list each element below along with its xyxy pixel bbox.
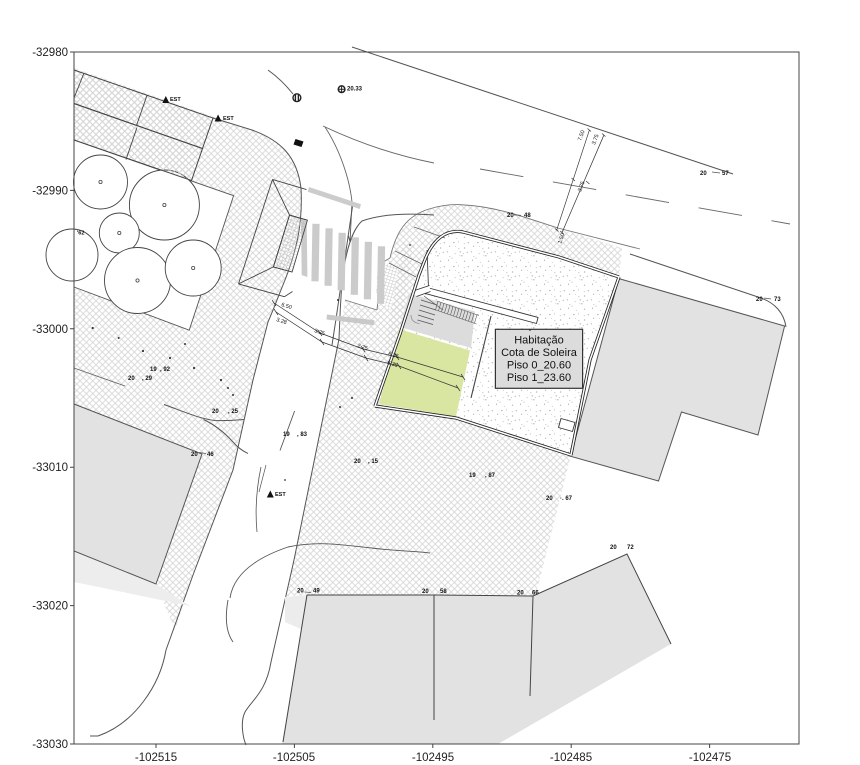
svg-text:20: 20: [297, 589, 304, 595]
svg-text:48: 48: [524, 213, 531, 219]
svg-text:73: 73: [774, 297, 781, 303]
svg-text:20: 20: [354, 459, 361, 465]
svg-text:49: 49: [313, 589, 320, 595]
svg-text:58: 58: [440, 589, 447, 595]
svg-text:19: 19: [150, 367, 157, 373]
svg-text:20: 20: [128, 376, 135, 382]
svg-text:20: 20: [610, 545, 617, 551]
svg-text:20: 20: [212, 409, 219, 415]
svg-text:20: 20: [191, 452, 198, 458]
svg-text:, 87: , 87: [485, 473, 496, 479]
svg-text:Piso 0_20.60: Piso 0_20.60: [507, 360, 571, 372]
svg-text:-102515: -102515: [135, 752, 177, 764]
svg-text:-102505: -102505: [273, 752, 315, 764]
svg-text:66: 66: [532, 591, 539, 597]
svg-text:EST: EST: [275, 492, 286, 498]
svg-text:-33030: -33030: [32, 739, 68, 751]
svg-text:20.33: 20.33: [347, 87, 363, 93]
svg-text:-102495: -102495: [412, 752, 454, 764]
svg-text:, 15: , 15: [368, 459, 379, 465]
svg-text:-32990: -32990: [32, 185, 68, 197]
svg-text:Cota de Soleira: Cota de Soleira: [501, 347, 578, 359]
svg-text:EST: EST: [223, 116, 234, 122]
svg-text:EST: EST: [170, 97, 181, 103]
svg-text:'62: '62: [77, 231, 84, 237]
svg-text:46: 46: [207, 452, 214, 458]
svg-text:57: 57: [722, 171, 729, 177]
svg-text:-33010: -33010: [32, 462, 68, 474]
svg-text:-33000: -33000: [32, 324, 68, 336]
svg-text:19: 19: [283, 432, 290, 438]
svg-text:-32980: -32980: [32, 47, 68, 59]
svg-text:19: 19: [469, 473, 476, 479]
svg-text:, 29: , 29: [142, 376, 153, 382]
svg-text:20: 20: [517, 591, 524, 597]
svg-text:Habitação: Habitação: [514, 335, 564, 347]
svg-text:Piso 1_23.60: Piso 1_23.60: [507, 372, 571, 384]
svg-text:20: 20: [546, 496, 553, 502]
svg-text:, 83: , 83: [297, 432, 308, 438]
svg-text:20: 20: [422, 589, 429, 595]
svg-text:·. 67: ·. 67: [560, 496, 573, 502]
svg-text:, 92: , 92: [160, 367, 171, 373]
svg-text:72: 72: [627, 545, 634, 551]
svg-text:, 25: , 25: [228, 409, 239, 415]
svg-text:-102485: -102485: [550, 752, 592, 764]
svg-text:20: 20: [756, 297, 763, 303]
svg-text:20: 20: [507, 213, 514, 219]
svg-text:-102475: -102475: [689, 752, 731, 764]
svg-text:20: 20: [700, 171, 707, 177]
svg-text:-33020: -33020: [32, 601, 68, 613]
